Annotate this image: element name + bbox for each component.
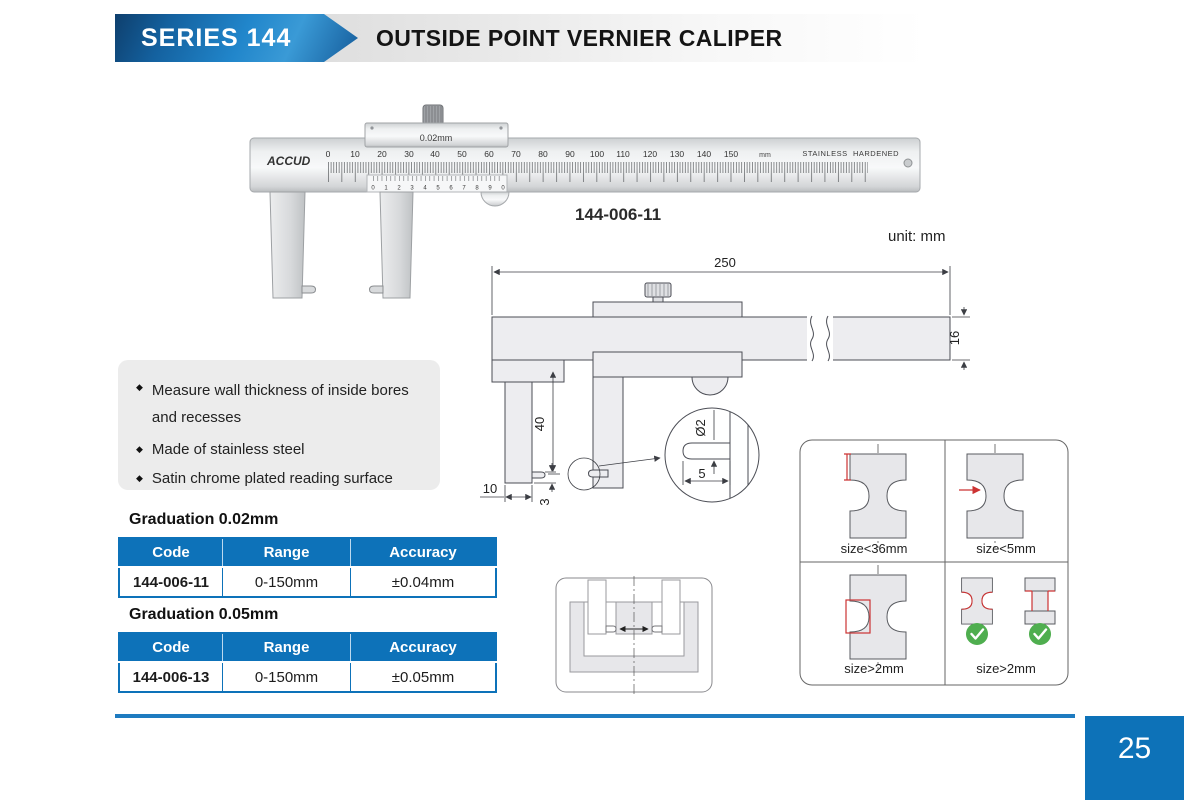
cell-accuracy: ±0.05mm — [351, 662, 497, 692]
footer-rule — [115, 714, 1075, 718]
feature-text: Measure wall thickness of inside bores a… — [152, 377, 428, 431]
brand-logo: ACCUD — [266, 154, 311, 168]
svg-text:0: 0 — [326, 149, 331, 159]
hardened-label: HARDENED — [853, 149, 899, 158]
col-header-accuracy: Accuracy — [351, 538, 497, 567]
feature-item: ◆ Made of stainless steel — [136, 439, 428, 460]
spec-table-2: Code Range Accuracy 144-006-13 0-150mm ±… — [118, 632, 497, 693]
check-icon — [1029, 623, 1051, 645]
size-label: size<36mm — [841, 541, 908, 556]
cell-code: 144-006-11 — [119, 567, 223, 597]
cell-accuracy: ±0.04mm — [351, 567, 497, 597]
page-title: OUTSIDE POINT VERNIER CALIPER — [376, 14, 782, 62]
table-header-row: Code Range Accuracy — [119, 633, 496, 662]
photo-movable-jaw — [380, 192, 413, 298]
slider-thumb — [481, 192, 509, 206]
graduation-heading-2: Graduation 0.05mm — [129, 606, 278, 624]
col-header-accuracy: Accuracy — [351, 633, 497, 662]
page-number-badge: 25 — [1085, 716, 1184, 800]
page-number: 25 — [1118, 732, 1151, 766]
svg-text:150: 150 — [724, 149, 738, 159]
svg-text:60: 60 — [484, 149, 494, 159]
svg-text:40: 40 — [532, 417, 547, 431]
unit-note: unit: mm — [888, 228, 946, 245]
col-header-range: Range — [223, 633, 351, 662]
photo-fixed-point — [302, 286, 316, 293]
size-application-panel: size<36mm size<5mm size>2mm size> — [798, 435, 1073, 690]
spec-table-1: Code Range Accuracy 144-006-11 0-150mm ±… — [118, 537, 497, 598]
vernier-ticks — [373, 176, 503, 182]
svg-text:130: 130 — [670, 149, 684, 159]
size-label: size>2mm — [844, 661, 904, 676]
table-row: 144-006-11 0-150mm ±0.04mm — [119, 567, 496, 597]
slider-graduation-label: 0.02mm — [420, 133, 453, 143]
feature-item: ◆ Satin chrome plated reading surface — [136, 468, 428, 489]
svg-text:50: 50 — [457, 149, 467, 159]
svg-text:Ø2: Ø2 — [693, 419, 708, 436]
feature-item: ◆ Measure wall thickness of inside bores… — [136, 377, 428, 431]
bore-section-diagram — [548, 570, 723, 700]
col-header-range: Range — [223, 538, 351, 567]
diamond-bullet-icon: ◆ — [136, 439, 143, 460]
col-header-code: Code — [119, 538, 223, 567]
cell-range: 0-150mm — [223, 662, 351, 692]
photo-fixed-jaw — [270, 192, 305, 298]
cell-range: 0-150mm — [223, 567, 351, 597]
svg-text:16: 16 — [947, 331, 962, 345]
scale-unit-label: mm — [759, 152, 771, 159]
catalog-page: SERIES 144 OUTSIDE POINT VERNIER CALIPER… — [0, 0, 1184, 800]
svg-text:250: 250 — [714, 255, 736, 270]
svg-text:10: 10 — [350, 149, 360, 159]
diamond-bullet-icon: ◆ — [136, 468, 143, 489]
svg-text:70: 70 — [511, 149, 521, 159]
svg-text:40: 40 — [430, 149, 440, 159]
feature-text: Made of stainless steel — [152, 439, 428, 460]
col-header-code: Code — [119, 633, 223, 662]
beam-hole — [904, 159, 912, 167]
feature-text: Satin chrome plated reading surface — [152, 468, 428, 489]
svg-text:10: 10 — [483, 481, 497, 496]
size-label: size<5mm — [976, 541, 1036, 556]
stainless-label: STAINLESS — [802, 149, 847, 158]
series-label: SERIES 144 — [141, 24, 291, 53]
diamond-bullet-icon: ◆ — [136, 377, 143, 431]
svg-text:100: 100 — [590, 149, 604, 159]
svg-text:5: 5 — [698, 466, 705, 481]
svg-text:90: 90 — [565, 149, 575, 159]
svg-text:20: 20 — [377, 149, 387, 159]
series-banner: SERIES 144 — [115, 14, 358, 62]
svg-text:30: 30 — [404, 149, 414, 159]
svg-text:3: 3 — [537, 498, 552, 505]
table-row: 144-006-13 0-150mm ±0.05mm — [119, 662, 496, 692]
table-header-row: Code Range Accuracy — [119, 538, 496, 567]
check-icon — [966, 623, 988, 645]
size-label: size>2mm — [976, 661, 1036, 676]
svg-text:110: 110 — [616, 149, 630, 159]
graduation-heading-1: Graduation 0.02mm — [129, 511, 278, 529]
model-number: 144-006-11 — [575, 205, 661, 225]
svg-text:120: 120 — [643, 149, 657, 159]
features-box: ◆ Measure wall thickness of inside bores… — [118, 360, 440, 490]
svg-text:140: 140 — [697, 149, 711, 159]
svg-text:80: 80 — [538, 149, 548, 159]
photo-movable-point — [370, 286, 384, 293]
cell-code: 144-006-13 — [119, 662, 223, 692]
